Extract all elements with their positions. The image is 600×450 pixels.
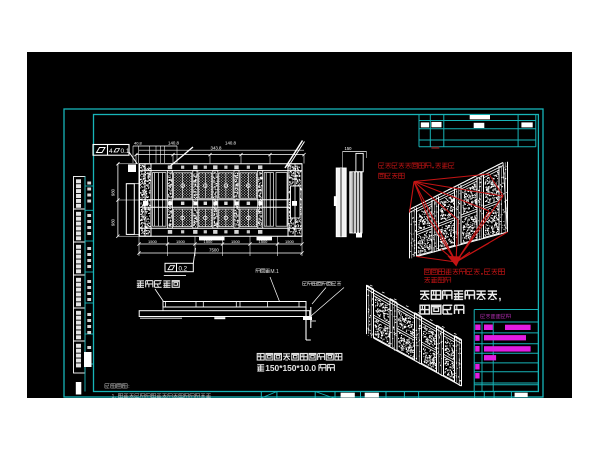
svg-text:150*150*10.0: 150*150*10.0 [265,363,316,373]
svg-text:0.1: 0.1 [121,148,130,155]
svg-text::: : [128,384,130,390]
svg-text:140.8: 140.8 [225,141,237,146]
svg-text:980: 980 [111,188,116,196]
svg-text:1500: 1500 [204,239,214,244]
svg-text:1500: 1500 [259,239,269,244]
svg-text:140.8: 140.8 [168,141,180,146]
svg-text:343.8: 343.8 [211,145,223,150]
svg-text:150: 150 [345,146,353,151]
svg-text:4: 4 [109,148,113,155]
svg-text:1500: 1500 [148,239,158,244]
svg-text:1500: 1500 [176,239,186,244]
svg-text:7500: 7500 [209,247,219,252]
svg-text:0.2: 0.2 [179,265,188,272]
svg-text:,: , [498,291,501,303]
svg-text:M.1: M.1 [270,269,279,275]
svg-text:1500: 1500 [231,239,241,244]
svg-text:980: 980 [111,218,116,226]
svg-text:40.8: 40.8 [134,141,143,146]
svg-text:1500: 1500 [285,239,295,244]
svg-text:1.: 1. [112,394,117,400]
